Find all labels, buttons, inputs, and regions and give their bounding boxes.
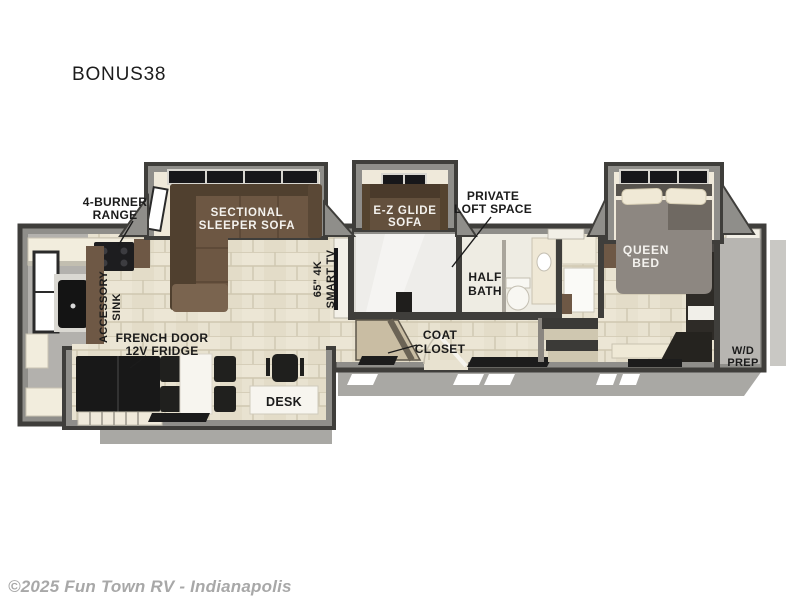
queen-bed-slideout [606, 164, 722, 294]
dinette-table [180, 354, 212, 414]
roof-vent [548, 229, 584, 239]
bottom-slideout [64, 344, 334, 428]
desk-chair [272, 354, 298, 382]
label-smart-tv-line2: SMART TV [325, 249, 337, 308]
queen-bed-icon [616, 184, 712, 294]
label-half-bath-line2: BATH [468, 284, 502, 298]
label-sectional-line1: SECTIONAL [211, 207, 284, 219]
front-cabinet [26, 334, 48, 368]
label-private-loft-line1: PRIVATE [467, 189, 519, 203]
label-private-loft-line2: LOFT SPACE [454, 202, 532, 216]
label-desk: DESK [266, 395, 302, 409]
dinette-chair [214, 356, 236, 382]
loft-ladder-icon [396, 292, 412, 314]
floorplan-svg: 4-BURNER RANGE SECTIONAL SLEEPER SOFA E-… [0, 0, 800, 600]
dealer-watermark: ©2025 Fun Town RV - Indianapolis [8, 577, 292, 597]
nightstand-left [604, 240, 616, 268]
label-queen-bed-line1: QUEEN [623, 243, 669, 257]
dinette-chair [160, 356, 182, 382]
label-ez-glide-line2: SOFA [388, 217, 422, 229]
bath-sink-icon [537, 253, 551, 271]
fridge-icon [76, 356, 162, 425]
label-coat-closet-line1: COAT [423, 328, 458, 342]
slideout-windows [168, 170, 318, 184]
entry-mat [358, 356, 398, 365]
toilet-icon [506, 278, 530, 310]
label-ez-glide-line1: E-Z GLIDE [373, 205, 436, 217]
label-sectional-line2: SLEEPER SOFA [199, 220, 296, 232]
slideout-windows [620, 170, 708, 184]
slideout-mat [148, 413, 210, 422]
label-fridge-line1: FRENCH DOOR [116, 331, 209, 345]
label-wd-prep-line2: PREP [727, 357, 758, 369]
dinette-chair [214, 386, 236, 412]
label-burner-range-line1: 4-BURNER [83, 195, 147, 209]
label-accessory-sink-line1: ACCESSORY [98, 271, 110, 343]
dinette-chair [160, 386, 182, 412]
counter-brown-end [134, 239, 150, 268]
label-burner-range-line2: RANGE [93, 208, 138, 222]
loft-room [352, 234, 458, 316]
accessory-sink-icon [58, 280, 88, 328]
label-smart-tv-line1: 65" 4K [312, 261, 324, 297]
label-half-bath-line1: HALF [468, 270, 501, 284]
bath-vanity [532, 238, 556, 304]
label-coat-closet-line2: CLOSET [415, 342, 466, 356]
label-accessory-sink-line2: SINK [111, 293, 123, 320]
hall-cabinets [562, 236, 596, 314]
bedroom-mat [628, 359, 682, 367]
label-queen-bed-line2: BED [632, 256, 659, 270]
label-fridge-line2: 12V FRIDGE [125, 344, 198, 358]
label-wd-prep-line1: W/D [732, 345, 754, 357]
